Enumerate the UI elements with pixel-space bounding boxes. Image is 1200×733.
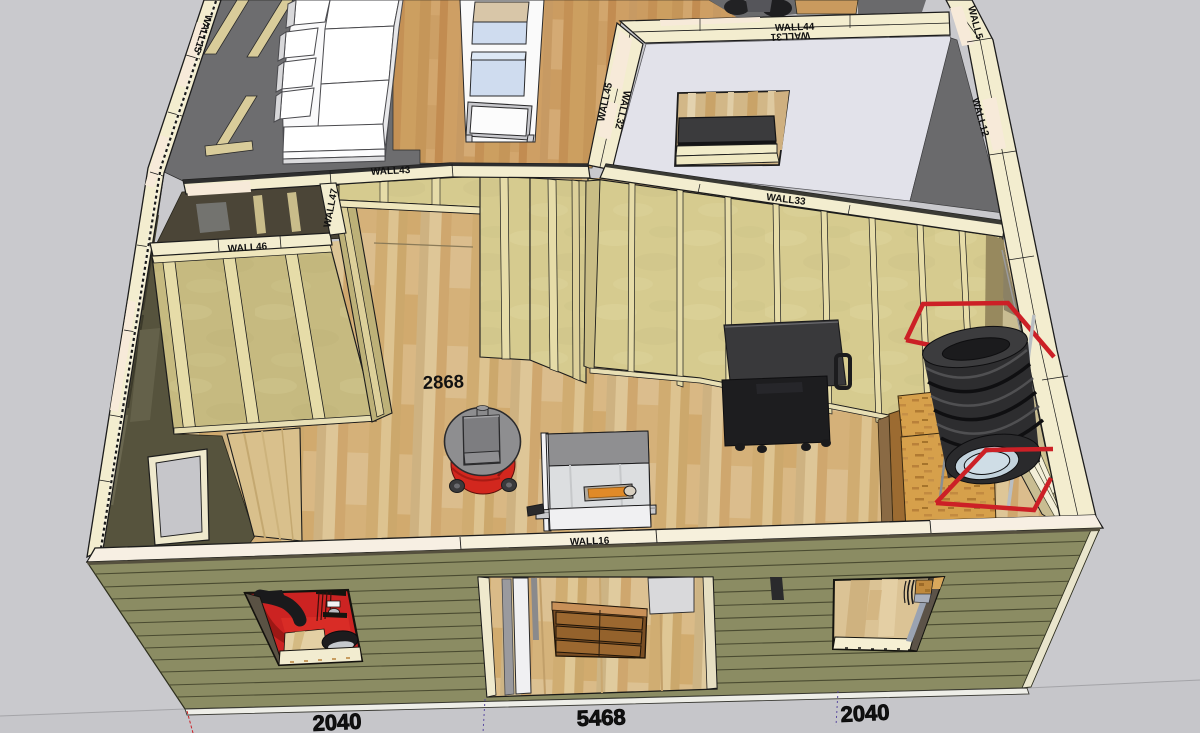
svg-text:2868: 2868 xyxy=(422,371,464,393)
svg-text:WALL43: WALL43 xyxy=(371,165,411,178)
svg-text:2040: 2040 xyxy=(312,708,362,733)
svg-text:2040: 2040 xyxy=(840,699,890,727)
svg-text:5468: 5468 xyxy=(576,704,626,731)
svg-text:WALL16: WALL16 xyxy=(570,536,610,548)
svg-text:WALL31: WALL31 xyxy=(770,29,810,42)
